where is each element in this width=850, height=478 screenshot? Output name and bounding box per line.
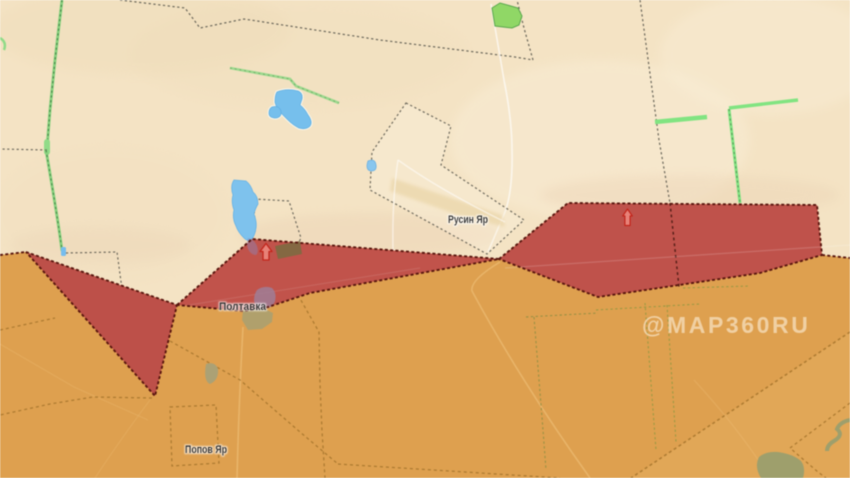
- svg-text:Полтавка: Полтавка: [219, 301, 267, 313]
- svg-text:Попов Яр: Попов Яр: [185, 444, 227, 456]
- svg-text:@MAP360RU: @MAP360RU: [642, 312, 811, 338]
- svg-text:Русин Яр: Русин Яр: [448, 214, 488, 226]
